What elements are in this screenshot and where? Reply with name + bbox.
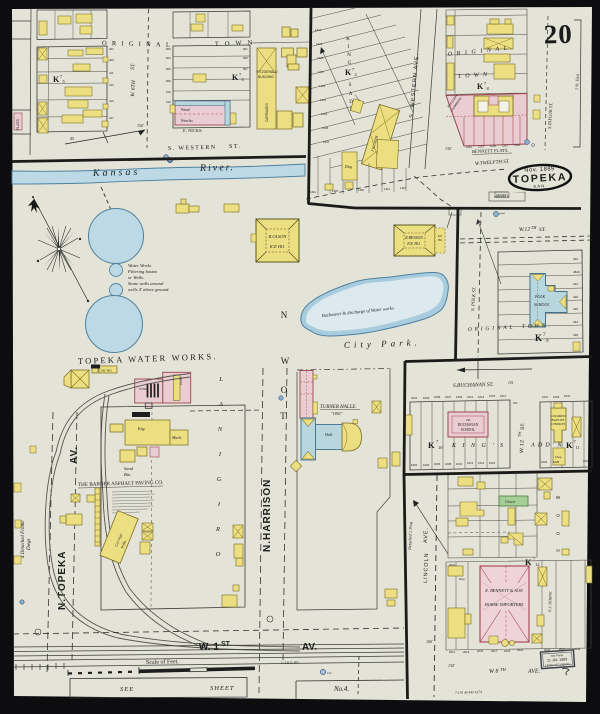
svg-text:CARRIAGES: CARRIAGES: [265, 103, 269, 122]
svg-text:E.J. HORNE: E.J. HORNE: [547, 591, 553, 613]
svg-text:417: 417: [109, 116, 114, 120]
svg-text:SCHOOL: SCHOOL: [534, 302, 550, 307]
svg-text:N: N: [281, 310, 288, 320]
svg-text:Bin.: Bin.: [124, 472, 131, 477]
svg-text:W. 1: W. 1: [199, 641, 220, 653]
svg-text:Dwgs: Dwgs: [27, 539, 32, 551]
svg-text:4820: 4820: [573, 270, 580, 274]
svg-text:1632: 1632: [583, 459, 590, 463]
svg-text:Wood: Wood: [181, 108, 190, 112]
svg-text:Kansas: Kansas: [92, 167, 141, 179]
svg-text:Water Works: Water Works: [128, 263, 151, 268]
svg-text:610: 610: [166, 90, 171, 94]
svg-text:430: 430: [573, 307, 578, 311]
svg-text:N: N: [217, 426, 223, 433]
svg-text:2013: 2013: [463, 650, 470, 654]
svg-text:1629: 1629: [553, 395, 560, 399]
svg-text:ICE HO.: ICE HO.: [269, 244, 286, 249]
svg-text:No.4.: No.4.: [333, 685, 349, 693]
svg-text:ICE HO.: ICE HO.: [406, 242, 421, 246]
svg-text:608: 608: [166, 79, 171, 83]
svg-text:"1892": "1892": [331, 411, 343, 416]
svg-text:2D: 2D: [466, 418, 471, 422]
svg-text:1209: 1209: [514, 143, 520, 147]
svg-text:or Wells.: or Wells.: [128, 275, 144, 280]
svg-text:SHEET: SHEET: [210, 685, 235, 692]
svg-text:S. WESTERN: S. WESTERN: [168, 145, 217, 152]
svg-text:AV.: AV.: [302, 642, 318, 653]
svg-text:Cis: Cis: [327, 671, 332, 675]
svg-text:1631: 1631: [564, 394, 571, 398]
svg-text:1203: 1203: [478, 145, 484, 149]
svg-text:Warcho.: Warcho.: [181, 119, 194, 123]
svg-text:Stone walls around: Stone walls around: [128, 281, 164, 286]
svg-text:1415: 1415: [400, 186, 406, 190]
svg-text:409: 409: [109, 58, 114, 62]
svg-text:1616: 1616: [489, 461, 496, 465]
svg-text:600: 600: [166, 47, 171, 51]
svg-text:1433: 1433: [321, 112, 328, 116]
svg-text:1437: 1437: [323, 140, 330, 144]
svg-text:FITZGERALD: FITZGERALD: [257, 70, 279, 74]
svg-text:1603: 1603: [423, 396, 430, 400]
svg-text:601: 601: [243, 47, 248, 51]
svg-text:TURNER HALLE.: TURNER HALLE.: [320, 405, 357, 410]
svg-text:1429: 1429: [319, 84, 326, 88]
svg-text:R: R: [215, 526, 220, 533]
svg-text:1421: 1421: [315, 28, 322, 32]
svg-text:LINCOLN: LINCOLN: [423, 553, 430, 584]
svg-text:BUILDING: BUILDING: [258, 75, 274, 79]
svg-text:1205: 1205: [490, 144, 496, 148]
svg-text:1608: 1608: [445, 462, 452, 466]
svg-text:Dwg: Dwg: [554, 455, 562, 459]
svg-text:401: 401: [109, 47, 114, 51]
svg-text:N.TOPEKA: N.TOPEKA: [57, 551, 68, 611]
svg-text:1601: 1601: [411, 396, 418, 400]
svg-text:Hall.: Hall.: [324, 432, 333, 437]
svg-text:422: 422: [573, 282, 578, 286]
svg-text:W. 6TH: W. 6TH: [130, 79, 137, 97]
svg-text:ICE: ICE: [438, 235, 443, 238]
svg-text:K: K: [566, 440, 573, 450]
svg-text:N.HARRISON: N.HARRISON: [262, 479, 273, 552]
svg-text:R.BENSON: R.BENSON: [404, 236, 423, 240]
svg-text:12: 12: [535, 562, 540, 567]
svg-text:POLK: POLK: [534, 294, 546, 299]
svg-text:Grocer: Grocer: [505, 500, 516, 504]
svg-text:K: K: [535, 333, 542, 343]
svg-text:1405: 1405: [332, 189, 338, 193]
svg-text:Detached 2 Dwg: Detached 2 Dwg: [407, 522, 413, 551]
svg-text:T: T: [280, 411, 286, 421]
svg-text:411: 411: [109, 71, 114, 75]
svg-text:161: 161: [513, 401, 518, 405]
svg-text:SEE: SEE: [120, 686, 134, 693]
svg-text:2017: 2017: [491, 649, 498, 653]
svg-text:434: 434: [573, 320, 578, 324]
svg-text:426: 426: [573, 295, 578, 299]
svg-text:1435: 1435: [322, 126, 329, 130]
svg-text:E. BENNETT & SON: E. BENNETT & SON: [484, 588, 524, 593]
svg-text:2015: 2015: [477, 649, 484, 653]
svg-text:K: K: [232, 73, 239, 82]
svg-text:Scale of Feet.: Scale of Feet.: [146, 658, 179, 666]
svg-text:K: K: [477, 82, 484, 91]
svg-text:2 St. East: 2 St. East: [574, 73, 580, 90]
svg-text:S.BUCHANAN ST.: S.BUCHANAN ST.: [453, 382, 494, 389]
svg-text:150': 150': [137, 123, 144, 128]
svg-text:W: W: [281, 356, 290, 366]
svg-text:R.OLSON: R.OLSON: [268, 234, 288, 239]
svg-text:438: 438: [573, 333, 578, 337]
svg-text:W 8: W 8: [489, 669, 499, 675]
svg-text:1423: 1423: [316, 42, 323, 46]
svg-text:ST.: ST.: [229, 144, 241, 150]
svg-text:AVE.: AVE.: [423, 527, 430, 543]
svg-text:11: 11: [576, 445, 580, 450]
svg-text:HORSE IMPORTERS: HORSE IMPORTERS: [484, 602, 524, 607]
svg-text:10: 10: [438, 445, 443, 450]
svg-text:G: G: [348, 61, 352, 66]
svg-text:U.S.B.P. RD.: U.S.B.P. RD.: [281, 661, 300, 665]
svg-text:2011: 2011: [449, 650, 455, 654]
svg-text:S: S: [349, 83, 352, 88]
svg-text:River.: River.: [199, 162, 235, 174]
svg-text:E. NICKS.: E. NICKS.: [183, 128, 203, 133]
svg-text:4 Detached Frame: 4 Detached Frame: [21, 520, 26, 558]
svg-text:K: K: [346, 37, 350, 42]
svg-text:OIL HO.: OIL HO.: [101, 369, 112, 373]
svg-text:Mach.: Mach.: [171, 435, 182, 440]
svg-text:ST: ST: [221, 641, 231, 648]
svg-text:BUCHANAN: BUCHANAN: [458, 423, 479, 427]
svg-text:607: 607: [243, 67, 248, 71]
svg-text:2021: 2021: [517, 648, 524, 652]
svg-text:O: O: [216, 551, 221, 558]
svg-text:612: 612: [166, 100, 171, 104]
svg-text:1607: 1607: [445, 395, 452, 399]
svg-text:CHURCH: CHURCH: [551, 422, 565, 426]
svg-text:413: 413: [109, 83, 114, 87]
svg-text:2029: 2029: [574, 647, 581, 651]
svg-text:ST.: ST.: [130, 63, 136, 70]
svg-text:45: 45: [70, 136, 74, 141]
svg-text:Dwg: Dwg: [459, 577, 465, 581]
svg-text:A: A: [218, 401, 223, 408]
svg-text:293: 293: [573, 257, 578, 261]
svg-text:AVE.: AVE.: [527, 669, 540, 675]
svg-text:20: 20: [543, 19, 573, 50]
svg-text:A: A: [349, 92, 353, 97]
svg-text:1610: 1610: [456, 462, 463, 466]
svg-text:1613: 1613: [478, 395, 485, 399]
svg-text:2: 2: [355, 72, 357, 77]
svg-text:K: K: [53, 75, 60, 84]
svg-text:K: K: [428, 440, 435, 450]
svg-text:1615: 1615: [489, 394, 496, 398]
svg-text:Dwg: Dwg: [344, 165, 352, 169]
svg-text:N: N: [347, 53, 351, 58]
svg-text:KAN.: KAN.: [533, 183, 547, 189]
svg-text:O: O: [556, 531, 560, 536]
svg-text:W.12: W.12: [519, 439, 525, 453]
svg-text:100': 100': [426, 639, 433, 644]
svg-text:1201: 1201: [466, 145, 472, 149]
svg-text:wells 4' above ground.: wells 4' above ground.: [128, 287, 169, 292]
svg-text:1605: 1605: [434, 395, 441, 399]
svg-text:ST.: ST.: [539, 227, 546, 233]
svg-text:1427: 1427: [318, 70, 325, 74]
svg-text:Eng.: Eng.: [137, 426, 145, 431]
svg-text:ST.: ST.: [520, 423, 526, 430]
svg-text:1614: 1614: [478, 461, 485, 465]
svg-text:1431: 1431: [320, 98, 327, 102]
svg-text:1401: 1401: [310, 190, 316, 194]
svg-text:1627: 1627: [542, 395, 549, 399]
svg-text:K: K: [345, 68, 352, 77]
svg-text:605: 605: [243, 56, 248, 60]
svg-text:SCHOOL: SCHOOL: [461, 428, 475, 432]
svg-text:1611: 1611: [467, 395, 473, 399]
svg-text:1617: 1617: [500, 394, 507, 398]
svg-text:W.HO: W.HO: [139, 387, 148, 391]
svg-text:TH: TH: [500, 667, 507, 672]
svg-text:G: G: [217, 476, 222, 483]
svg-text:1609: 1609: [456, 395, 463, 399]
svg-text:1413: 1413: [384, 187, 390, 191]
svg-text:HO: HO: [438, 239, 442, 242]
svg-text:606: 606: [166, 67, 171, 71]
svg-text:101: 101: [508, 381, 514, 385]
svg-text:1602: 1602: [411, 463, 418, 467]
svg-text:TH: TH: [517, 431, 522, 437]
svg-text:1604: 1604: [423, 463, 430, 467]
svg-text:FLATS: FLATS: [16, 118, 20, 130]
svg-text:1425: 1425: [317, 56, 324, 60]
svg-text:1207: 1207: [502, 144, 508, 148]
svg-text:2012: 2012: [449, 563, 456, 567]
svg-text:Filtering basins: Filtering basins: [127, 269, 157, 274]
svg-text:1626: 1626: [541, 460, 548, 464]
svg-text:W.12: W.12: [519, 227, 531, 233]
svg-text:H: H: [556, 548, 559, 553]
svg-text:O: O: [556, 513, 560, 518]
svg-text:604: 604: [166, 56, 171, 60]
svg-text:L: L: [218, 376, 223, 383]
svg-text:KING'S: KING'S: [451, 443, 510, 449]
svg-text:415: 415: [109, 99, 114, 103]
svg-text:130': 130': [448, 663, 455, 668]
svg-text:ADD'N: ADD'N: [530, 443, 565, 449]
svg-text:1606: 1606: [434, 462, 441, 466]
svg-text:2019: 2019: [504, 649, 511, 653]
svg-text:1628: 1628: [553, 460, 560, 464]
svg-text:1612: 1612: [467, 461, 474, 465]
svg-text:AV.: AV.: [69, 446, 80, 464]
svg-text:130': 130': [445, 146, 452, 151]
svg-text:VIRGINIA H.: VIRGINIA H.: [494, 195, 510, 199]
svg-text:Sand: Sand: [124, 466, 134, 471]
